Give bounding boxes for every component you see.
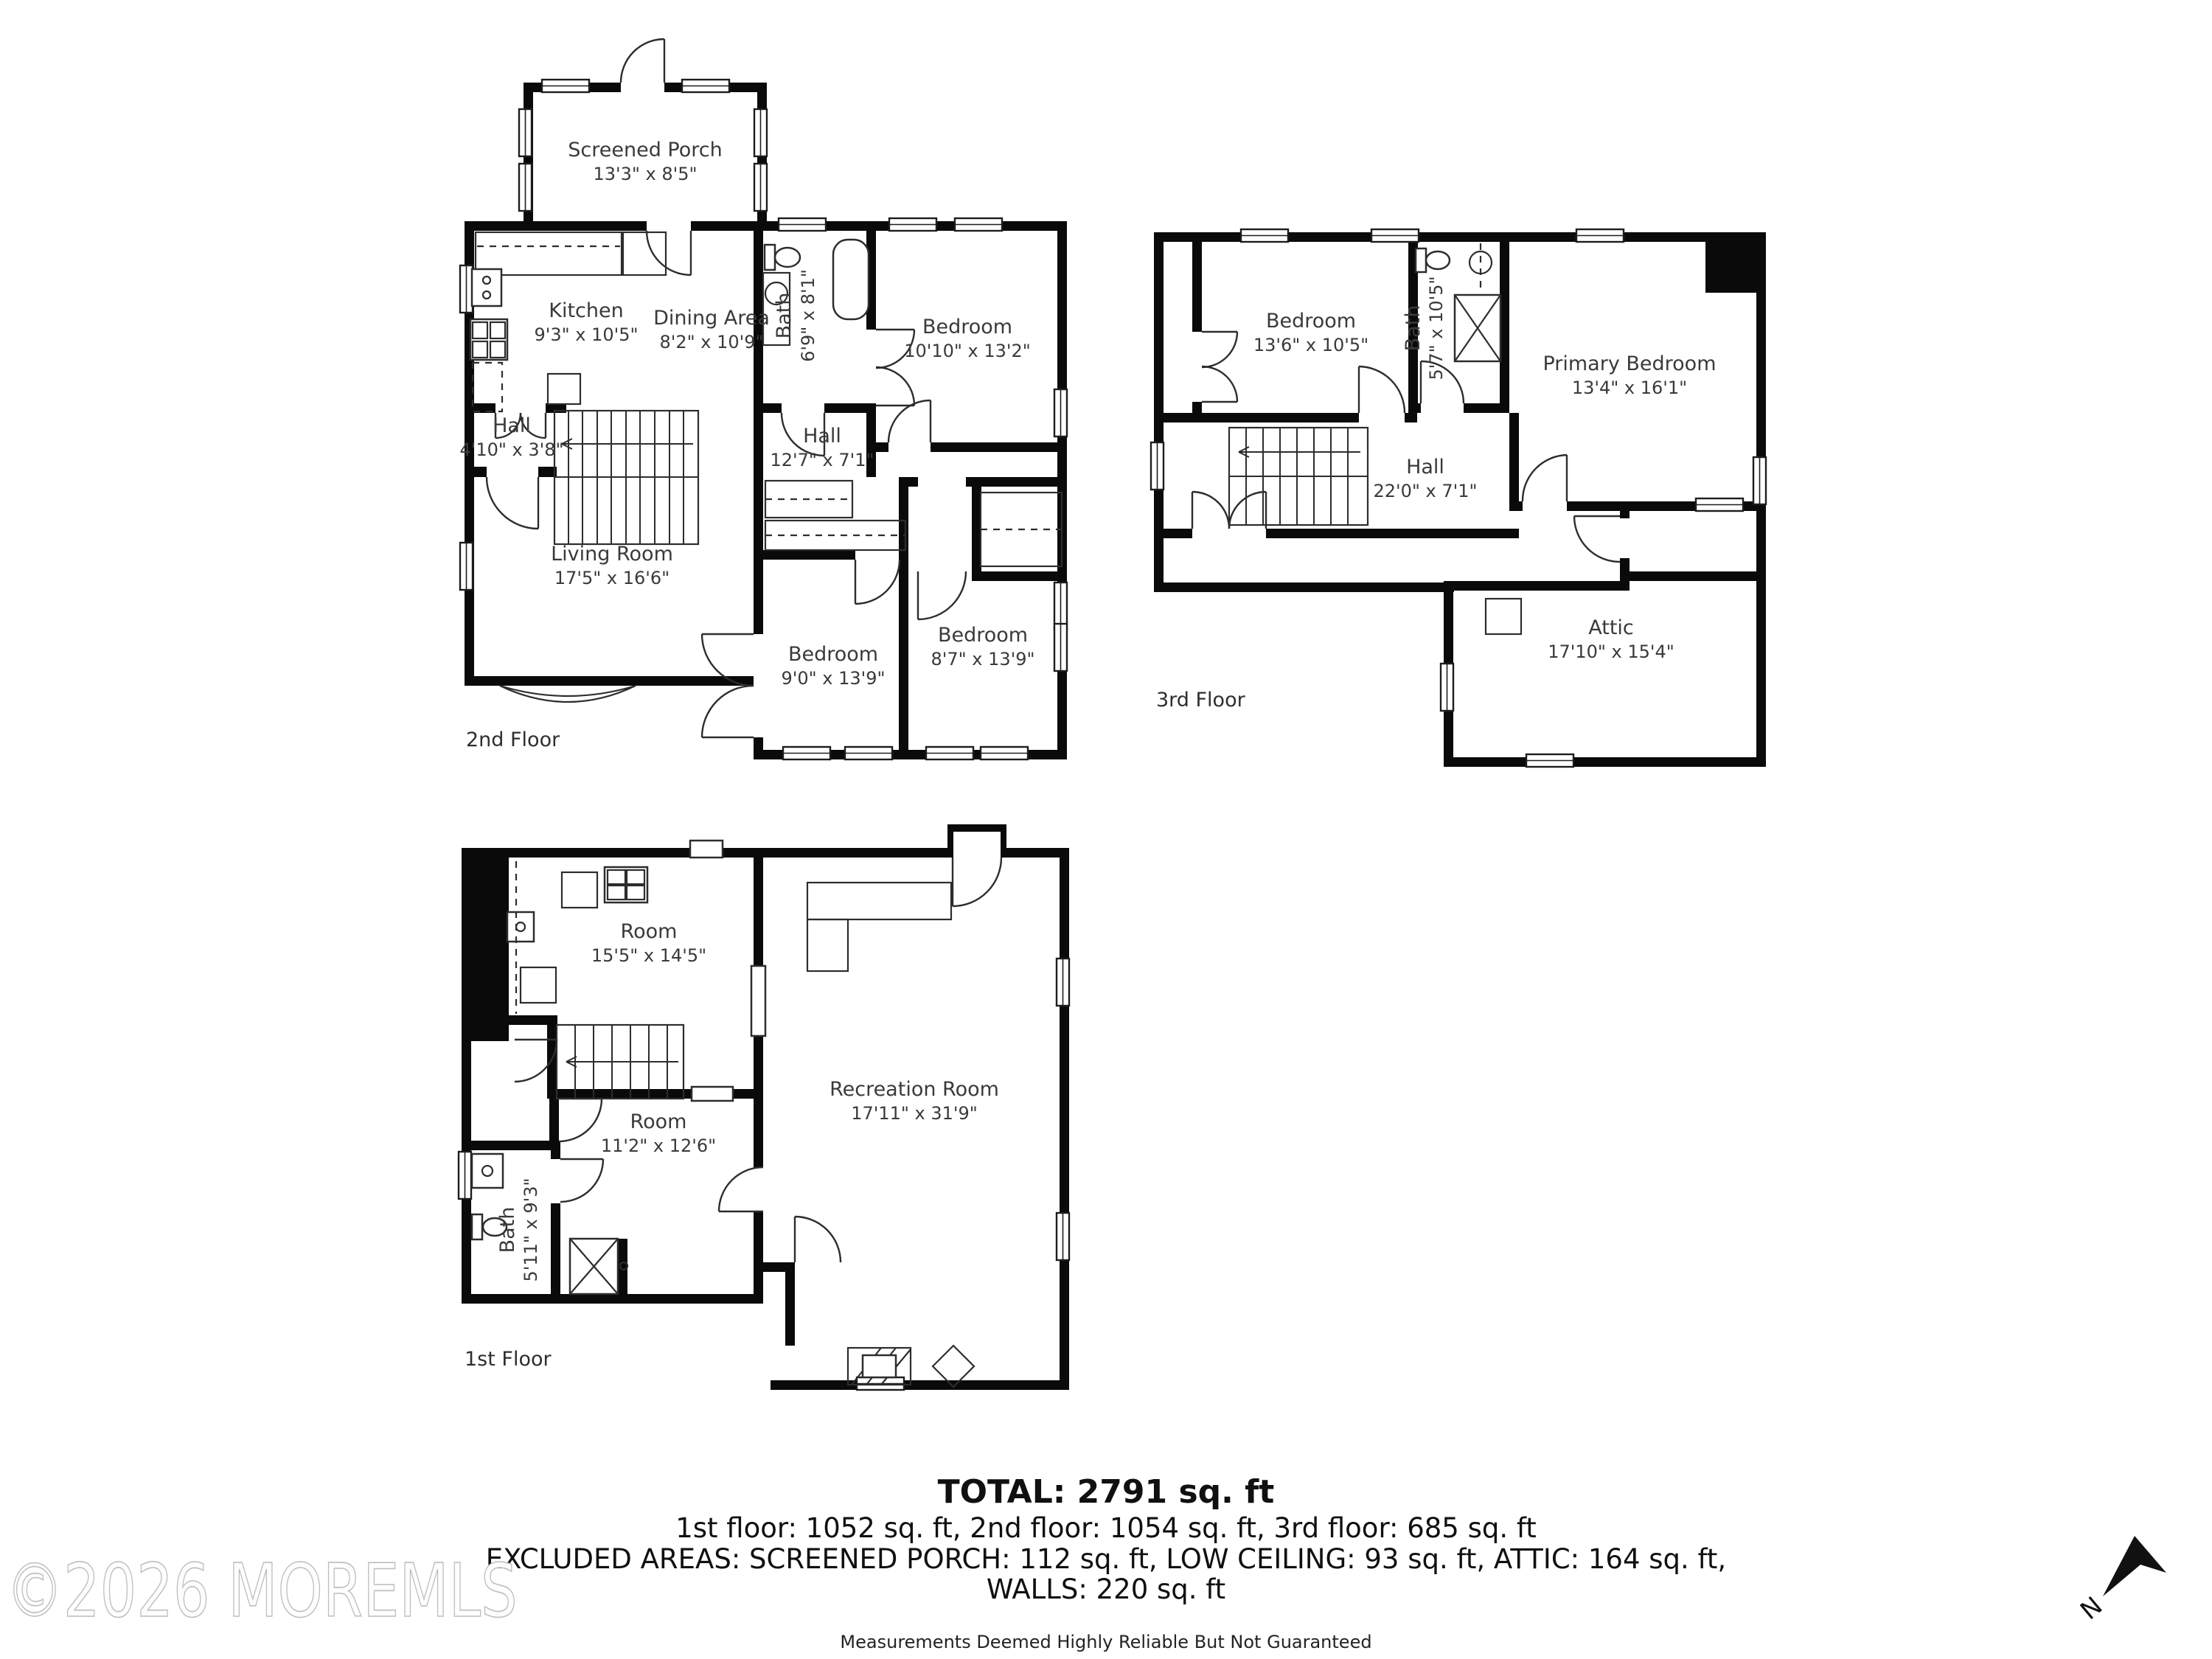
plan-1st-floor: Room 15'5" x 14'5" Recreation Room 17'11… — [459, 824, 1069, 1390]
north-label: N — [2075, 1591, 2108, 1626]
label-attic: Attic — [1588, 616, 1634, 639]
dims-dining: 8'2" x 10'9" — [659, 332, 763, 352]
stairs-1st-floor — [557, 1025, 684, 1099]
floor-label-3rd: 3rd Floor — [1156, 689, 1246, 712]
dims-hall-small: 4'10" x 3'8" — [459, 439, 563, 460]
floor-label-1st: 1st Floor — [465, 1348, 552, 1371]
bow-window — [500, 686, 636, 702]
dims-bath-1st: 5'11" x 9'3" — [521, 1178, 541, 1281]
label-bedroom-right: Bedroom — [938, 624, 1028, 647]
door-arcs-2nd-floor — [487, 39, 966, 737]
dims-bedroom-3rd: 13'6" x 10'5" — [1253, 335, 1368, 355]
dims-hall-3rd: 22'0" x 7'1" — [1373, 481, 1477, 501]
label-bath-1st: Bath — [496, 1207, 519, 1253]
mls-watermark: ©2026 MOREMLS — [6, 1549, 518, 1635]
label-hall-3rd: Hall — [1406, 456, 1444, 479]
summary-total: TOTAL: 2791 sq. ft — [938, 1473, 1275, 1511]
floor-plan-page: Screened Porch 13'3" x 8'5" Kitchen 9'3"… — [0, 0, 2212, 1659]
dims-room-lower: 11'2" x 12'6" — [601, 1135, 716, 1156]
dims-attic: 17'10" x 15'4" — [1548, 641, 1674, 662]
dims-room-upper: 15'5" x 14'5" — [591, 945, 706, 966]
room-labels-1st-floor: Room 15'5" x 14'5" Recreation Room 17'11… — [496, 920, 999, 1282]
dims-screened-porch: 13'3" x 8'5" — [593, 164, 697, 184]
label-bath-2nd: Bath — [773, 293, 796, 339]
dims-bath-3rd: 5'7" x 10'5" — [1426, 276, 1447, 380]
label-bedroom-3rd: Bedroom — [1266, 310, 1356, 333]
summary-excluded-line: EXCLUDED AREAS: SCREENED PORCH: 112 sq. … — [486, 1543, 1726, 1575]
dims-kitchen: 9'3" x 10'5" — [534, 324, 638, 345]
label-kitchen: Kitchen — [549, 299, 623, 322]
bath-fixtures-1st — [472, 1154, 627, 1294]
label-primary-bedroom: Primary Bedroom — [1543, 352, 1716, 375]
dims-bedroom-top: 10'10" x 13'2" — [904, 341, 1031, 361]
dims-bath-2nd: 6'9" x 8'1" — [798, 269, 818, 362]
north-compass: N — [2075, 1536, 2166, 1626]
label-room-upper: Room — [621, 920, 678, 943]
rec-room-features — [807, 883, 974, 1387]
dims-hall-2nd: 12'7" x 7'1" — [770, 450, 874, 470]
summary-block: TOTAL: 2791 sq. ft 1st floor: 1052 sq. f… — [486, 1473, 1726, 1652]
dims-living: 17'5" x 16'6" — [554, 568, 669, 588]
walls-1st-floor — [462, 824, 1069, 1390]
label-screened-porch: Screened Porch — [568, 139, 722, 161]
label-recreation: Recreation Room — [829, 1078, 999, 1101]
label-hall-small: Hall — [493, 414, 531, 437]
plan-3rd-floor: Bedroom 13'6" x 10'5" Bath 5'7" x 10'5" … — [1151, 229, 1766, 767]
plan-2nd-floor: Screened Porch 13'3" x 8'5" Kitchen 9'3"… — [459, 39, 1067, 759]
dims-bedroom-right: 8'7" x 13'9" — [931, 649, 1034, 669]
floor-label-2nd: 2nd Floor — [466, 728, 560, 751]
summary-disclaimer: Measurements Deemed Highly Reliable But … — [840, 1632, 1371, 1652]
stairs-3rd-floor — [1229, 428, 1368, 525]
dims-bedroom-left: 9'0" x 13'9" — [781, 668, 885, 689]
north-arrow-icon — [2103, 1536, 2166, 1596]
label-hall-2nd: Hall — [803, 425, 841, 448]
label-bedroom-top: Bedroom — [922, 316, 1012, 338]
summary-floors-line: 1st floor: 1052 sq. ft, 2nd floor: 1054 … — [675, 1512, 1537, 1544]
dims-recreation: 17'11" x 31'9" — [851, 1103, 978, 1124]
label-living: Living Room — [551, 543, 673, 566]
floor-plan-canvas: Screened Porch 13'3" x 8'5" Kitchen 9'3"… — [0, 0, 2212, 1659]
label-room-lower: Room — [630, 1110, 687, 1133]
stairs-2nd-floor — [554, 411, 698, 544]
attic-chimney — [1486, 599, 1521, 634]
label-dining: Dining Area — [653, 307, 770, 330]
summary-walls-line: WALLS: 220 sq. ft — [987, 1573, 1225, 1605]
label-bath-3rd: Bath — [1402, 305, 1425, 352]
label-bedroom-left: Bedroom — [788, 643, 878, 666]
dims-primary-bedroom: 13'4" x 16'1" — [1572, 378, 1687, 398]
